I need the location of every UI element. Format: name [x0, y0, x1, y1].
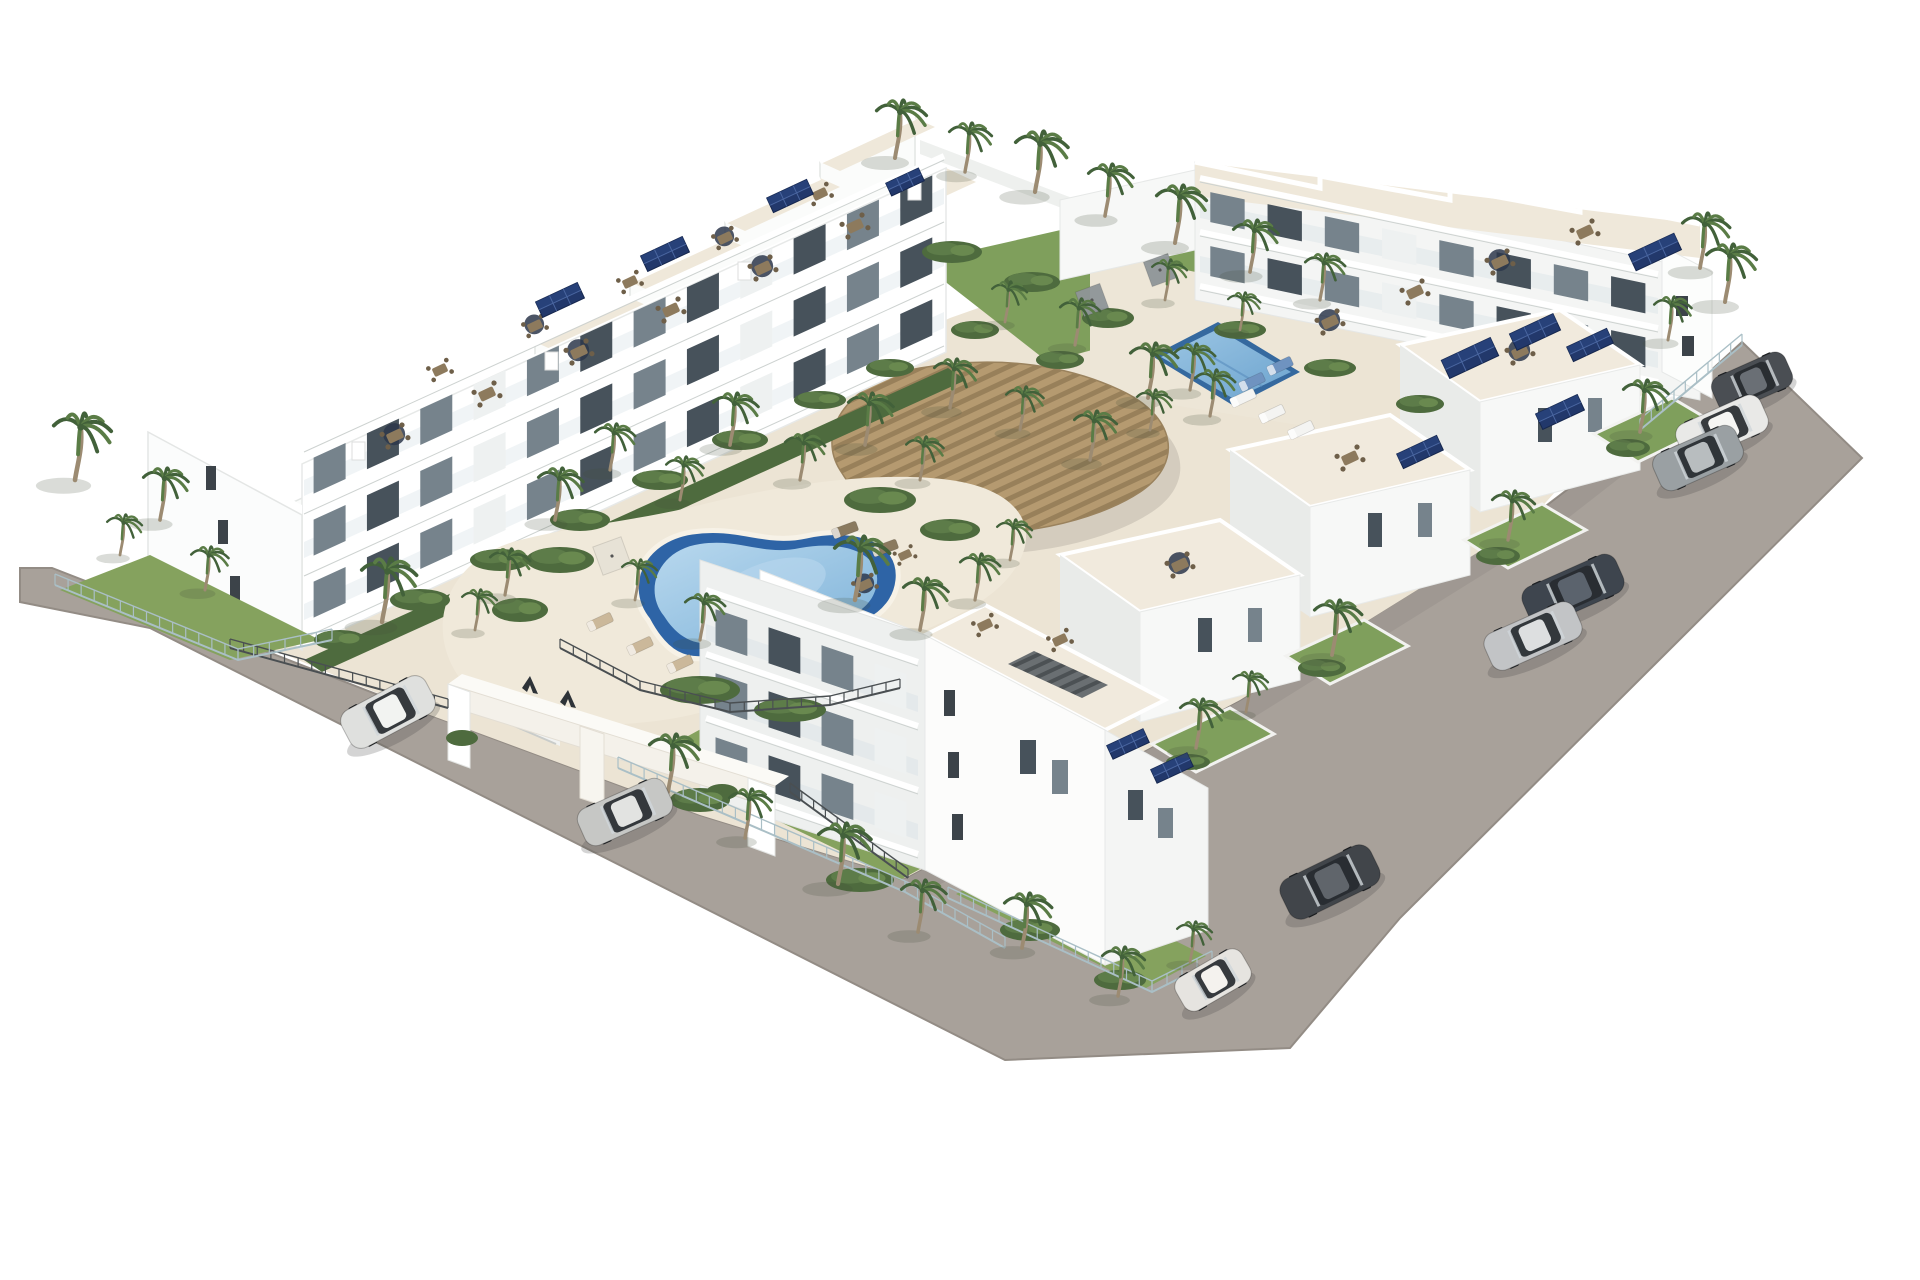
front-window [1128, 790, 1143, 820]
architectural-render [0, 0, 1920, 1280]
gate-pillar-left [448, 684, 470, 768]
shrub [866, 359, 914, 377]
shrub [1000, 919, 1060, 941]
gate-pillar-middle [580, 726, 604, 806]
gate-planter [446, 730, 478, 746]
shrub [844, 487, 916, 513]
gable-window [1682, 336, 1694, 356]
shrub [922, 241, 982, 263]
shrub [794, 391, 846, 409]
shrub [390, 589, 450, 611]
shrub [920, 519, 980, 541]
render-stage [0, 0, 1920, 1280]
front-window [1158, 808, 1173, 838]
shrub [632, 470, 688, 490]
shrub [526, 547, 594, 573]
shrub [1304, 359, 1356, 377]
shrub [1396, 395, 1444, 413]
